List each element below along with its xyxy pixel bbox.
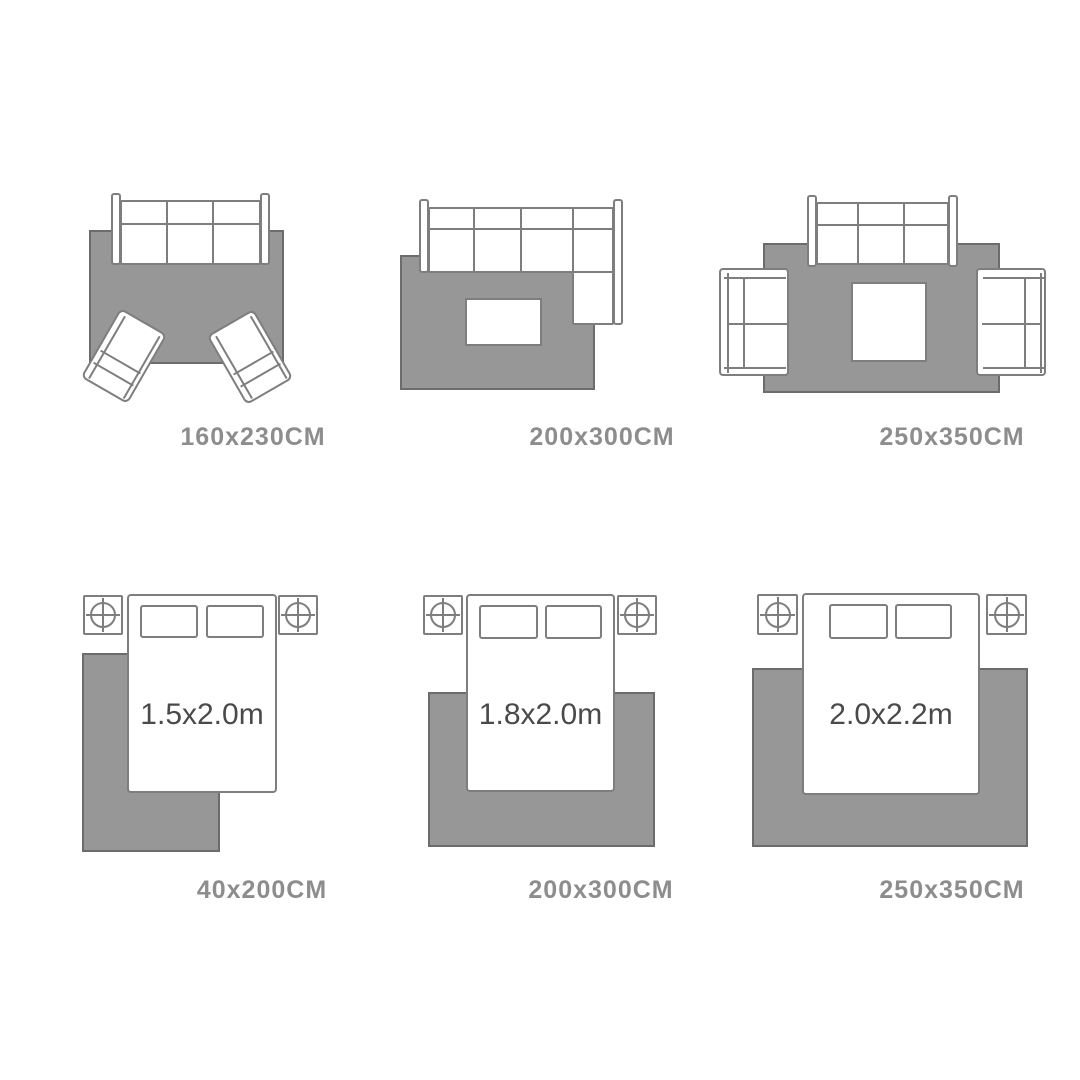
nightstand-right [986, 594, 1027, 635]
rug-size-guide: 160x230CM 200x300CM 250x [0, 0, 1080, 1080]
pillow [829, 604, 888, 639]
loveseat-armrest-line [983, 367, 1045, 369]
loveseat-left [719, 268, 789, 376]
rug-size-label: 250x350CM [832, 877, 1072, 903]
rug-size-label: 160x230CM [133, 424, 373, 450]
nightstand-left [423, 595, 463, 635]
lamp-icon [624, 602, 650, 628]
sofa-cushion-divider [857, 204, 859, 263]
sofa-cushion-divider [166, 202, 168, 263]
loveseat-mid-seam [982, 323, 1042, 325]
pillow [479, 605, 538, 639]
loveseat-mid-seam [727, 323, 787, 325]
sofa-cushion-divider [572, 209, 574, 273]
rug-size-label: 200x300CM [482, 424, 722, 450]
rug-size-label: 40x200CM [142, 877, 382, 903]
sofa-body [816, 202, 949, 265]
nightstand-left [757, 594, 798, 635]
pillow [545, 605, 602, 639]
sofa-cushion-divider [520, 209, 522, 271]
coffee-table [851, 282, 927, 362]
lamp-icon [430, 602, 456, 628]
bed-1-8m: 1.8x2.0m [466, 594, 615, 792]
loveseat-right [976, 268, 1046, 376]
sofa-armrest-right [260, 193, 270, 265]
rug-size-label: 250x350CM [832, 424, 1072, 450]
lamp-icon [765, 602, 791, 628]
lamp-icon [90, 602, 116, 628]
loveseat-armrest-line [983, 277, 1045, 279]
coffee-table [465, 298, 542, 346]
bed-size-text: 2.0x2.2m [804, 700, 978, 730]
pillow [140, 605, 198, 638]
lamp-icon [994, 602, 1020, 628]
sofa-armrest-right [948, 195, 958, 267]
loveseat-armrest-line [724, 367, 786, 369]
nightstand-left [83, 595, 123, 635]
sofa-body [120, 200, 261, 265]
bed-size-text: 1.8x2.0m [468, 700, 613, 730]
rug-size-label: 200x300CM [481, 877, 721, 903]
sofa-cushion-divider [473, 209, 475, 271]
bed-2-0m: 2.0x2.2m [802, 593, 980, 795]
sofa-cushion-divider [903, 204, 905, 263]
bed-size-text: 1.5x2.0m [129, 700, 275, 730]
lamp-icon [285, 602, 311, 628]
sofa-back-seam [818, 224, 947, 226]
loveseat-armrest-line [724, 277, 786, 279]
three-seat-sofa [111, 193, 270, 265]
sofa-armrest-right [613, 199, 623, 325]
pillow [206, 605, 264, 638]
sofa-back-seam [122, 223, 259, 225]
sofa-chaise [572, 273, 614, 325]
three-seat-sofa [807, 195, 958, 267]
bed-1-5m: 1.5x2.0m [127, 594, 277, 793]
sofa-cushion-divider [212, 202, 214, 263]
nightstand-right [278, 595, 318, 635]
pillow [895, 604, 952, 639]
nightstand-right [617, 595, 657, 635]
